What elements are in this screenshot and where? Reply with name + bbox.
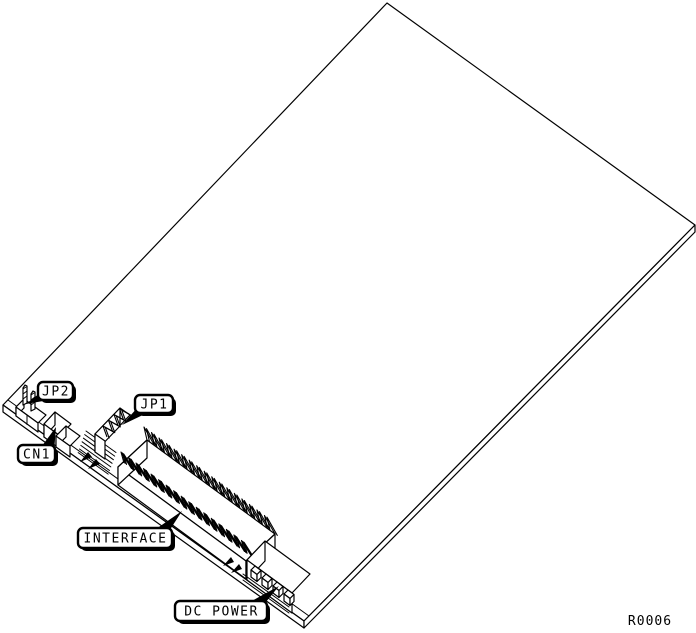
callout-jp1-label: JP1 [141,398,169,413]
drawing-number: R0006 [628,614,672,629]
callout-cn1-label: CN1 [23,448,51,463]
callout-dc-power-label: DC POWER [184,605,259,620]
jp2-pin-1 [23,385,27,405]
callout-jp2-label: JP2 [42,385,70,400]
figure-canvas: JP2 JP1 CN1 INTERFACE DC POWER R0006 [0,0,696,633]
callout-interface-label: INTERFACE [84,532,168,547]
board-diagram: JP2 JP1 CN1 INTERFACE DC POWER R0006 [0,0,696,633]
